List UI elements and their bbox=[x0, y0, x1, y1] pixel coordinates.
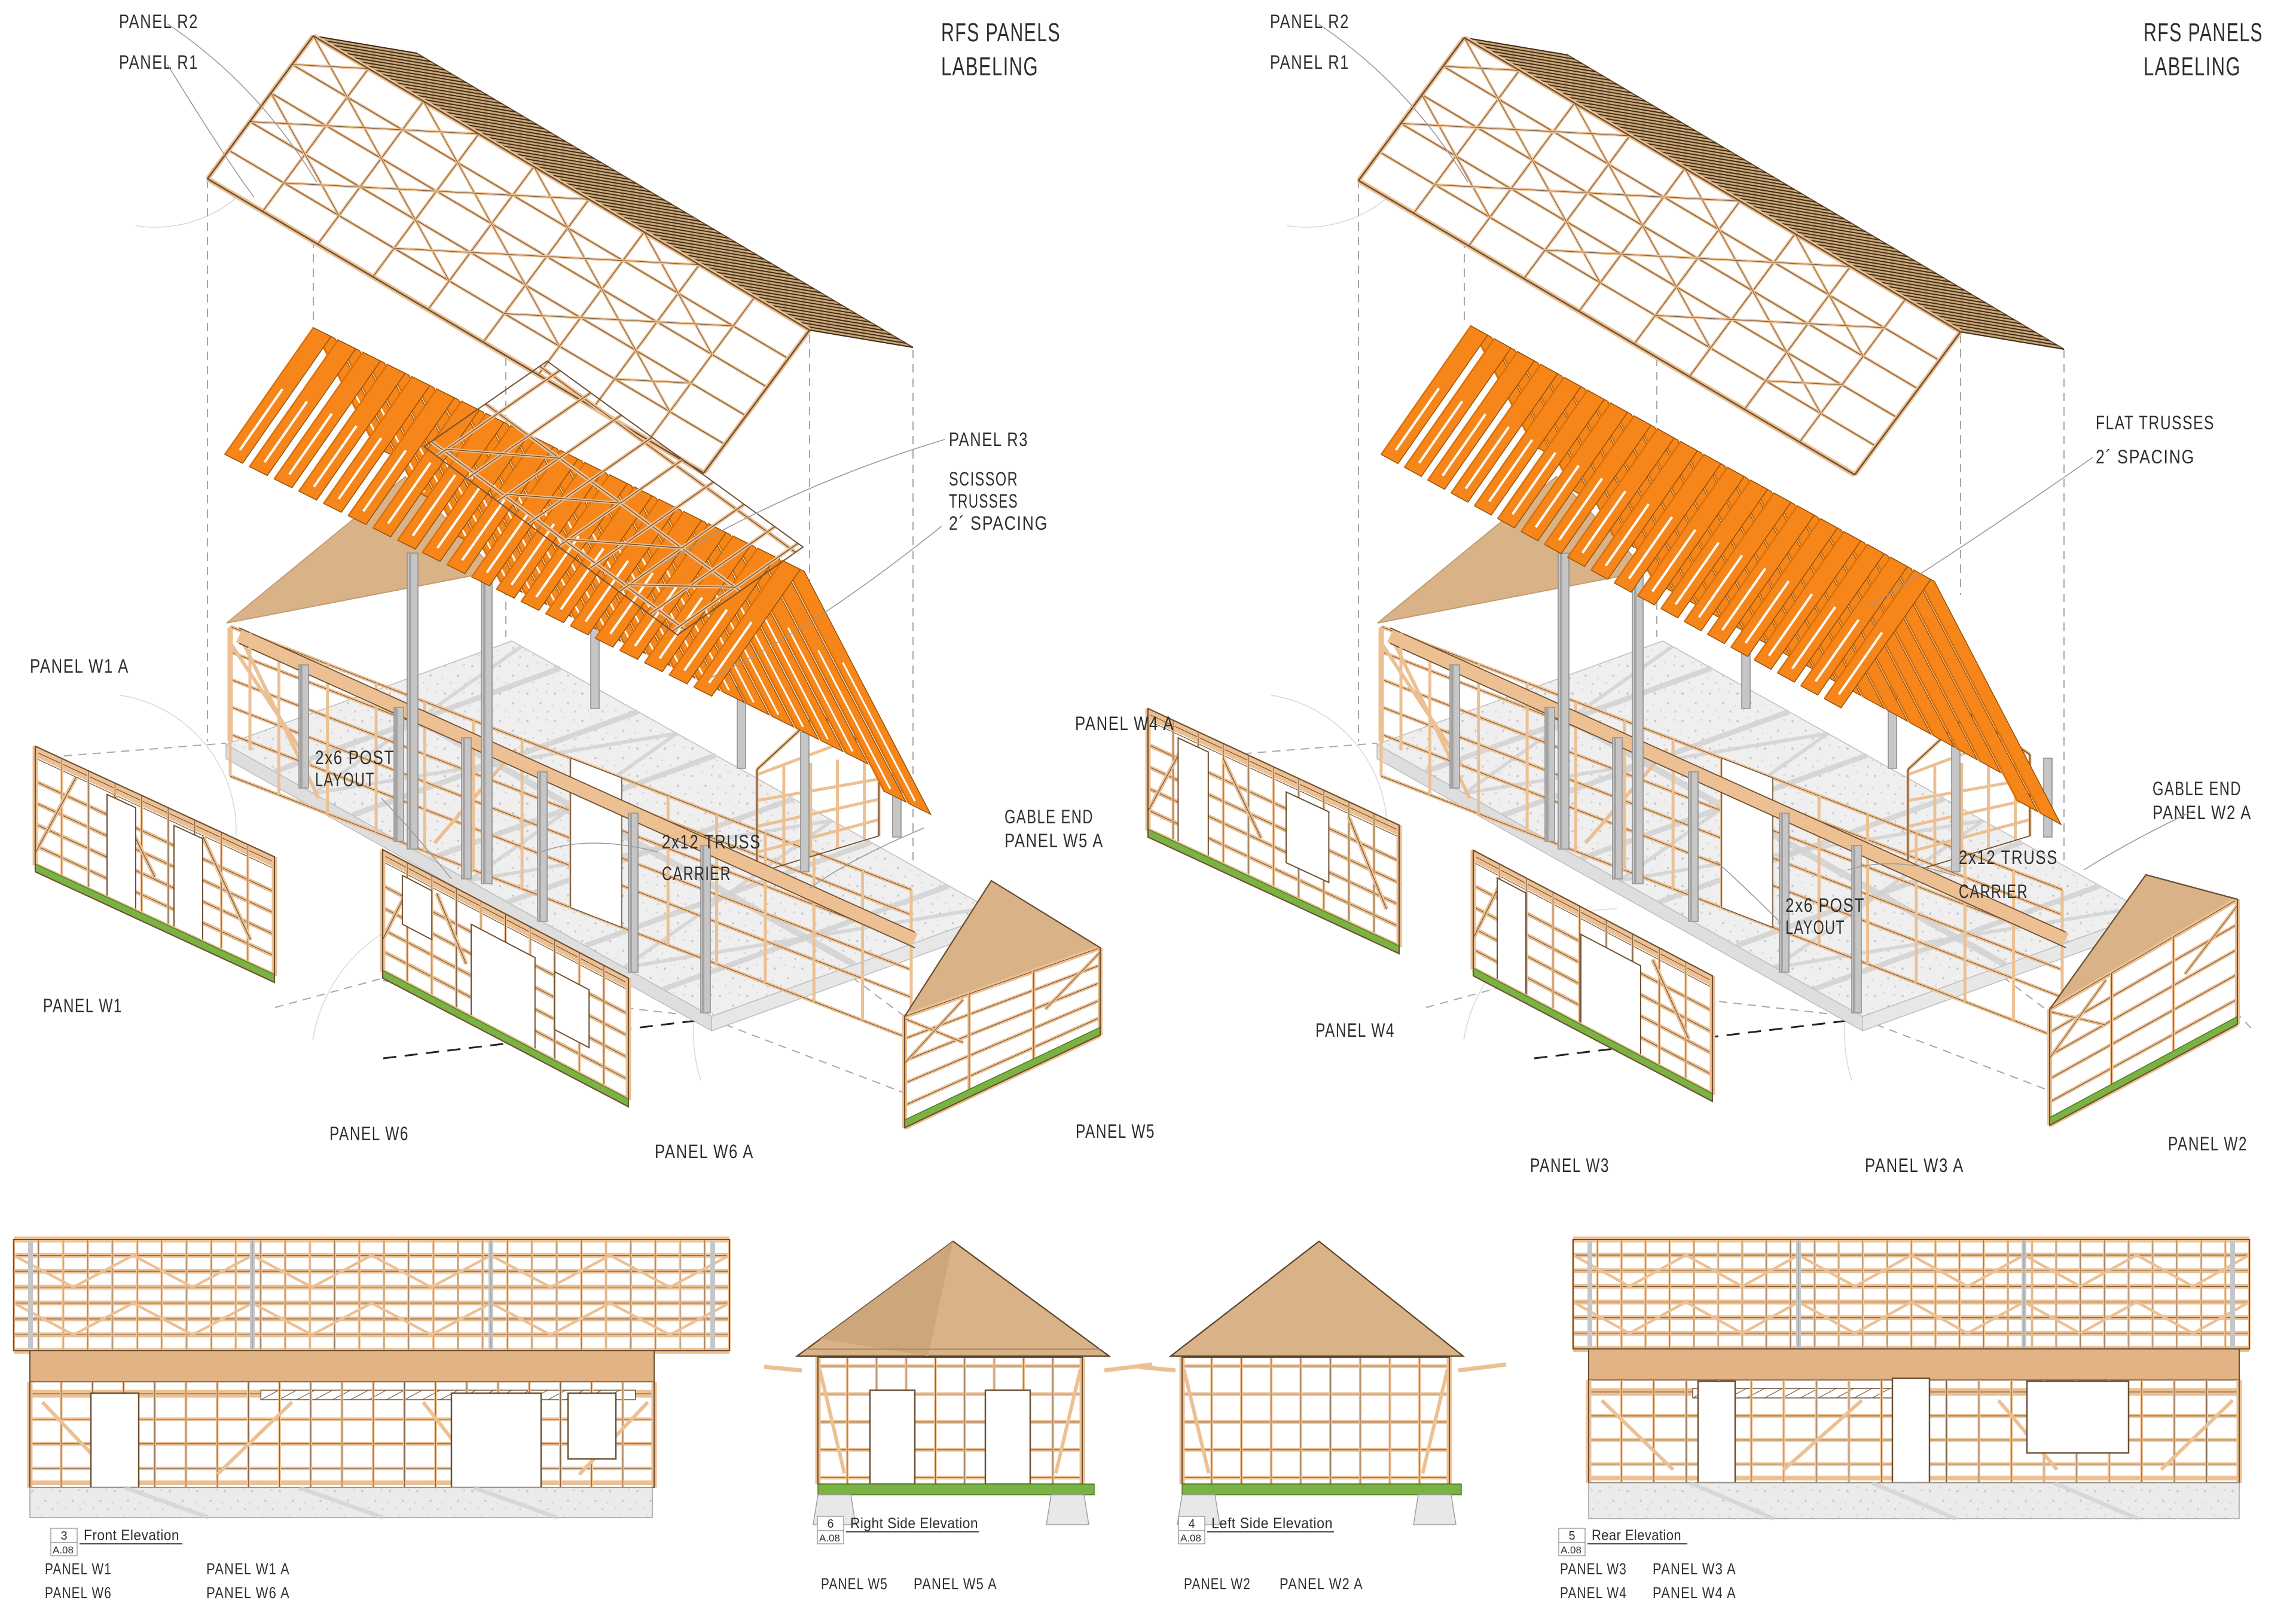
svg-text:PANEL W6: PANEL W6 bbox=[329, 1123, 409, 1144]
svg-text:PANEL W1: PANEL W1 bbox=[45, 1560, 112, 1578]
svg-text:PANEL R3: PANEL R3 bbox=[949, 429, 1028, 450]
svg-text:PANEL W4: PANEL W4 bbox=[1315, 1019, 1395, 1041]
svg-text:A.08: A.08 bbox=[53, 1544, 74, 1556]
svg-text:PANEL W3 A: PANEL W3 A bbox=[1865, 1155, 1964, 1176]
svg-text:PANEL W2 A: PANEL W2 A bbox=[2152, 802, 2252, 823]
svg-text:RFS PANELS: RFS PANELS bbox=[941, 18, 1061, 47]
svg-text:PANEL W3 A: PANEL W3 A bbox=[1653, 1560, 1736, 1578]
svg-text:SCISSOR: SCISSOR bbox=[949, 468, 1018, 490]
svg-text:PANEL W5: PANEL W5 bbox=[1076, 1121, 1155, 1142]
svg-text:PANEL R2: PANEL R2 bbox=[1270, 11, 1349, 32]
svg-text:2x6 POST: 2x6 POST bbox=[315, 747, 395, 768]
svg-text:2´ SPACING: 2´ SPACING bbox=[2096, 446, 2195, 468]
svg-text:CARRIER: CARRIER bbox=[1959, 881, 2028, 902]
svg-text:PANEL W1: PANEL W1 bbox=[43, 995, 123, 1016]
svg-text:PANEL R1: PANEL R1 bbox=[119, 51, 199, 73]
svg-text:2x6 POST: 2x6 POST bbox=[1785, 894, 1865, 916]
svg-text:PANEL W1 A: PANEL W1 A bbox=[206, 1560, 290, 1578]
svg-text:PANEL W6 A: PANEL W6 A bbox=[655, 1141, 754, 1162]
svg-text:FLAT TRUSSES: FLAT TRUSSES bbox=[2096, 412, 2215, 433]
svg-text:PANEL W5 A: PANEL W5 A bbox=[914, 1575, 997, 1593]
svg-text:Right Side Elevation: Right Side Elevation bbox=[850, 1515, 978, 1532]
svg-text:3: 3 bbox=[60, 1529, 67, 1543]
svg-text:5: 5 bbox=[1568, 1529, 1575, 1543]
svg-text:PANEL W1 A: PANEL W1 A bbox=[30, 655, 129, 677]
svg-text:Front Elevation: Front Elevation bbox=[84, 1527, 179, 1544]
svg-text:A.08: A.08 bbox=[819, 1532, 840, 1544]
svg-text:GABLE END: GABLE END bbox=[2152, 778, 2242, 799]
svg-text:PANEL R1: PANEL R1 bbox=[1270, 51, 1349, 73]
svg-text:PANEL W5: PANEL W5 bbox=[821, 1575, 888, 1593]
svg-text:LAYOUT: LAYOUT bbox=[1785, 917, 1845, 938]
svg-text:CARRIER: CARRIER bbox=[662, 863, 731, 884]
svg-text:Rear Elevation: Rear Elevation bbox=[1592, 1527, 1681, 1544]
svg-text:PANEL W5 A: PANEL W5 A bbox=[1004, 830, 1104, 851]
svg-text:PANEL W6 A: PANEL W6 A bbox=[206, 1584, 290, 1602]
svg-text:A.08: A.08 bbox=[1180, 1532, 1201, 1544]
svg-text:PANEL W3: PANEL W3 bbox=[1530, 1155, 1610, 1176]
svg-text:PANEL W2 A: PANEL W2 A bbox=[1280, 1575, 1363, 1593]
svg-text:LAYOUT: LAYOUT bbox=[315, 769, 375, 790]
svg-text:6: 6 bbox=[827, 1518, 833, 1531]
svg-text:TRUSSES: TRUSSES bbox=[949, 490, 1018, 512]
svg-text:PANEL R2: PANEL R2 bbox=[119, 11, 199, 32]
svg-text:A.08: A.08 bbox=[1561, 1544, 1581, 1556]
svg-text:2x12 TRUSS: 2x12 TRUSS bbox=[662, 831, 761, 853]
svg-text:Left Side Elevation: Left Side Elevation bbox=[1211, 1515, 1333, 1532]
svg-text:GABLE END: GABLE END bbox=[1004, 806, 1094, 828]
svg-text:PANEL W4: PANEL W4 bbox=[1560, 1584, 1627, 1602]
svg-text:PANEL W3: PANEL W3 bbox=[1560, 1560, 1627, 1578]
svg-text:PANEL W4 A: PANEL W4 A bbox=[1075, 713, 1174, 734]
svg-text:PANEL W4 A: PANEL W4 A bbox=[1653, 1584, 1736, 1602]
svg-text:2x12 TRUSS: 2x12 TRUSS bbox=[1959, 847, 2058, 868]
svg-text:LABELING: LABELING bbox=[941, 52, 1039, 81]
svg-text:RFS PANELS: RFS PANELS bbox=[2144, 18, 2263, 47]
svg-text:PANEL W2: PANEL W2 bbox=[1184, 1575, 1251, 1593]
svg-text:PANEL W6: PANEL W6 bbox=[45, 1584, 112, 1602]
svg-text:LABELING: LABELING bbox=[2144, 52, 2241, 81]
svg-text:4: 4 bbox=[1188, 1518, 1195, 1531]
svg-text:2´ SPACING: 2´ SPACING bbox=[949, 512, 1048, 534]
svg-text:PANEL W2: PANEL W2 bbox=[2168, 1133, 2248, 1155]
